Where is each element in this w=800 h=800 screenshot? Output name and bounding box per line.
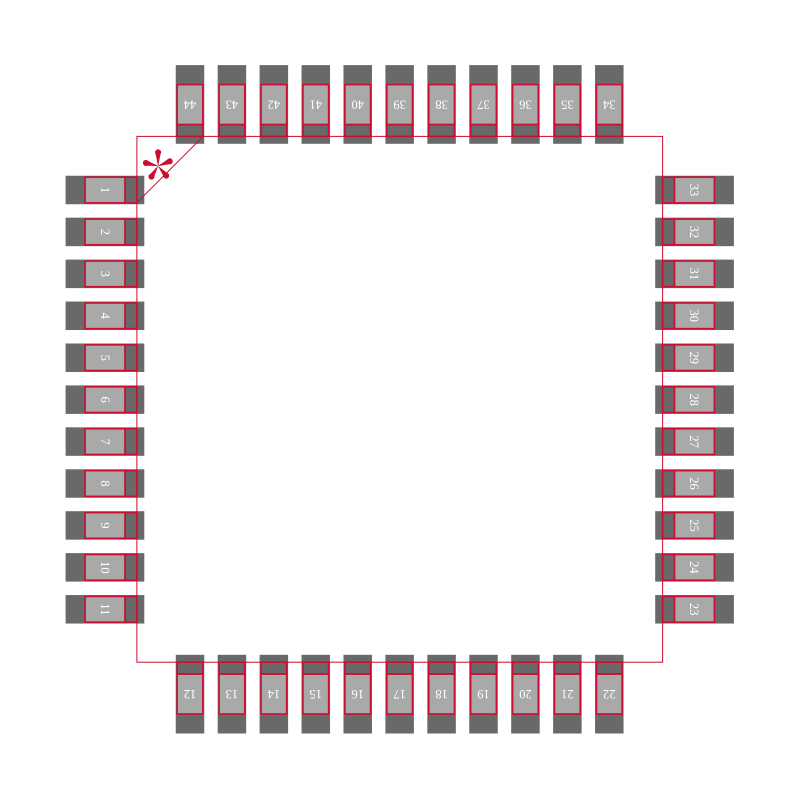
svg-text:9: 9 [98, 522, 112, 528]
svg-text:34: 34 [602, 97, 615, 111]
svg-text:21: 21 [561, 687, 574, 701]
svg-text:39: 39 [393, 97, 406, 111]
svg-text:10: 10 [98, 561, 112, 574]
svg-text:29: 29 [687, 351, 701, 364]
svg-text:1: 1 [98, 187, 112, 193]
svg-text:5: 5 [98, 355, 112, 361]
svg-text:33: 33 [687, 184, 701, 197]
svg-text:26: 26 [687, 477, 701, 490]
svg-text:43: 43 [226, 97, 239, 111]
svg-text:19: 19 [477, 687, 490, 701]
svg-text:23: 23 [687, 603, 701, 616]
svg-text:42: 42 [268, 97, 281, 111]
svg-text:6: 6 [98, 397, 112, 403]
svg-text:36: 36 [519, 97, 532, 111]
svg-text:35: 35 [561, 97, 574, 111]
svg-text:25: 25 [687, 519, 701, 532]
svg-text:32: 32 [687, 226, 701, 239]
svg-text:27: 27 [687, 435, 701, 448]
svg-text:14: 14 [267, 687, 280, 701]
svg-text:31: 31 [687, 268, 701, 281]
svg-text:37: 37 [477, 97, 490, 111]
svg-text:30: 30 [687, 310, 701, 323]
svg-text:12: 12 [184, 687, 197, 701]
svg-text:16: 16 [351, 687, 364, 701]
svg-text:17: 17 [393, 687, 406, 701]
svg-text:15: 15 [310, 687, 323, 701]
svg-text:44: 44 [183, 97, 196, 111]
svg-text:7: 7 [98, 438, 112, 444]
svg-text:38: 38 [435, 97, 448, 111]
svg-text:8: 8 [98, 480, 112, 486]
svg-text:24: 24 [687, 561, 701, 574]
svg-text:13: 13 [226, 687, 239, 701]
svg-text:11: 11 [98, 603, 112, 615]
svg-text:4: 4 [98, 313, 112, 320]
svg-text:41: 41 [310, 97, 323, 111]
svg-text:2: 2 [98, 229, 112, 235]
svg-text:28: 28 [687, 393, 701, 406]
svg-text:40: 40 [351, 97, 364, 111]
svg-text:3: 3 [98, 271, 112, 277]
svg-text:18: 18 [435, 687, 448, 701]
svg-text:20: 20 [519, 687, 532, 701]
svg-text:22: 22 [603, 687, 616, 701]
